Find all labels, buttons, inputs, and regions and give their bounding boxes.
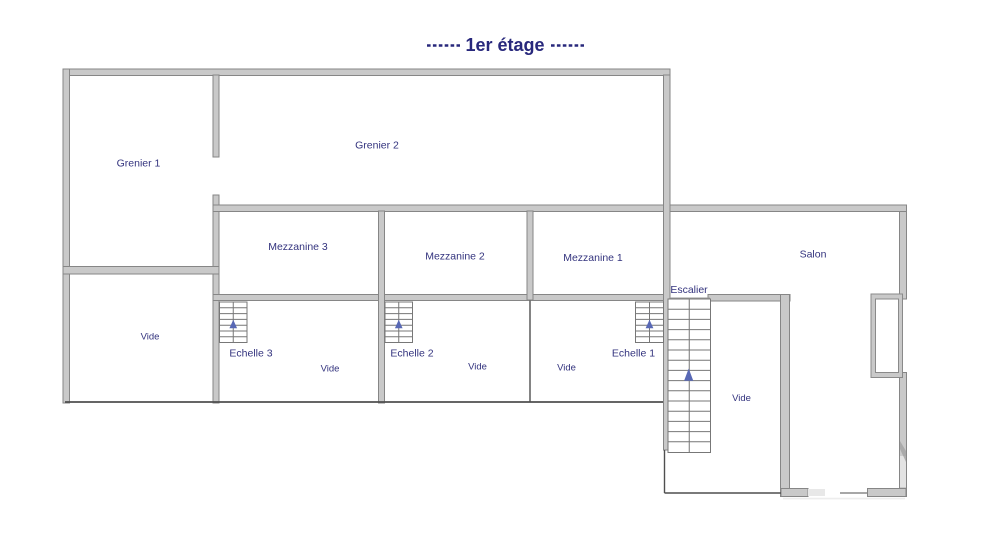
svg-text:Vide: Vide [141,332,160,343]
svg-text:Vide: Vide [468,362,487,373]
svg-text:Escalier: Escalier [670,284,708,296]
svg-text:Mezzanine 2: Mezzanine 2 [425,251,485,263]
svg-text:Vide: Vide [557,363,576,374]
svg-text:Mezzanine 3: Mezzanine 3 [268,241,328,253]
svg-text:Grenier 1: Grenier 1 [117,158,161,170]
svg-text:1er étage: 1er étage [465,35,544,55]
svg-text:Vide: Vide [732,393,751,404]
svg-text:Vide: Vide [321,364,340,375]
svg-text:Echelle 2: Echelle 2 [390,348,433,360]
svg-text:Salon: Salon [800,249,827,261]
svg-text:Echelle 1: Echelle 1 [612,348,655,360]
svg-text:Mezzanine 1: Mezzanine 1 [563,252,623,264]
svg-text:Grenier 2: Grenier 2 [355,140,399,152]
svg-text:Echelle 3: Echelle 3 [229,348,272,360]
